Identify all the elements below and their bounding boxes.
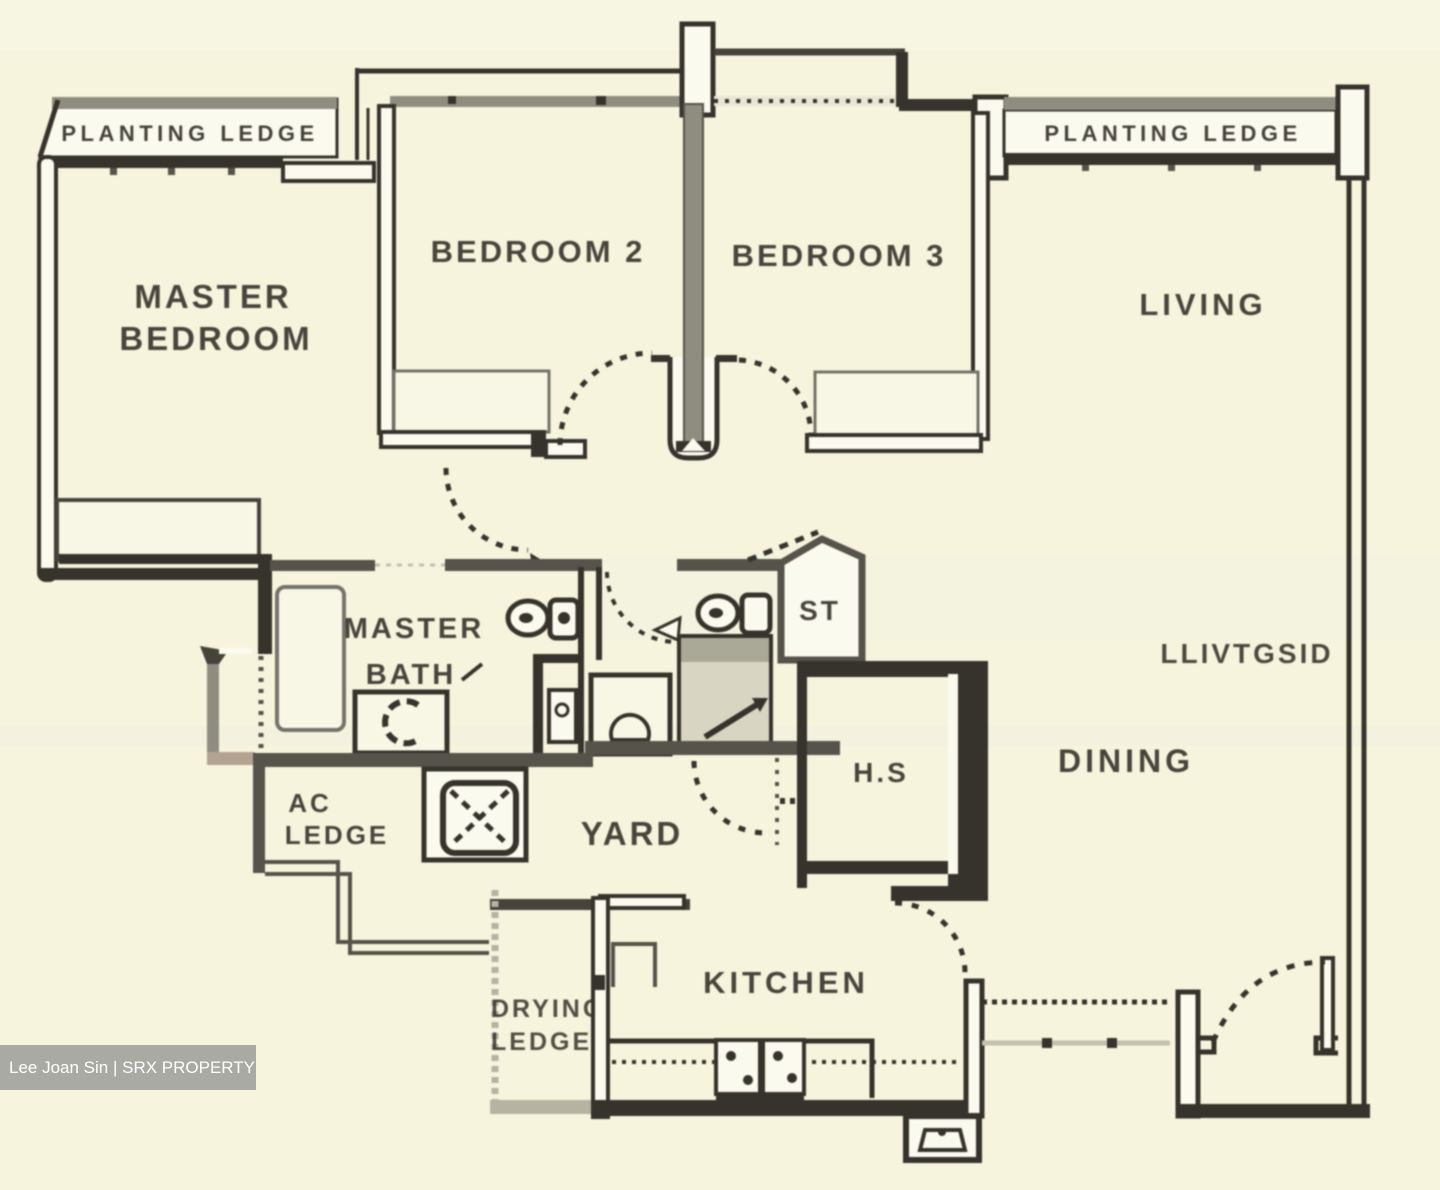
svg-text:LIVING: LIVING [1139, 287, 1266, 322]
svg-text:H.S: H.S [853, 757, 909, 788]
svg-text:AC: AC [288, 788, 332, 818]
svg-text:LEDGE: LEDGE [285, 820, 390, 850]
svg-text:PLANTING LEDGE: PLANTING LEDGE [61, 121, 318, 146]
svg-text:LLIVTGSID: LLIVTGSID [1160, 638, 1333, 669]
svg-text:MASTER: MASTER [344, 613, 484, 645]
svg-text:BEDROOM: BEDROOM [119, 320, 312, 357]
svg-text:BEDROOM 2: BEDROOM 2 [431, 234, 646, 269]
svg-text:MASTER: MASTER [134, 278, 291, 315]
svg-text:YARD: YARD [581, 815, 683, 852]
svg-text:BATH: BATH [366, 659, 456, 691]
svg-text:KITCHEN: KITCHEN [703, 965, 869, 1000]
svg-text:BEDROOM 3: BEDROOM 3 [732, 238, 947, 273]
svg-text:ST: ST [799, 595, 841, 626]
svg-text:DINING: DINING [1058, 743, 1194, 779]
svg-text:DRYING: DRYING [491, 995, 605, 1023]
svg-text:LEDGE: LEDGE [491, 1028, 592, 1056]
svg-text:PLANTING LEDGE: PLANTING LEDGE [1044, 121, 1301, 146]
